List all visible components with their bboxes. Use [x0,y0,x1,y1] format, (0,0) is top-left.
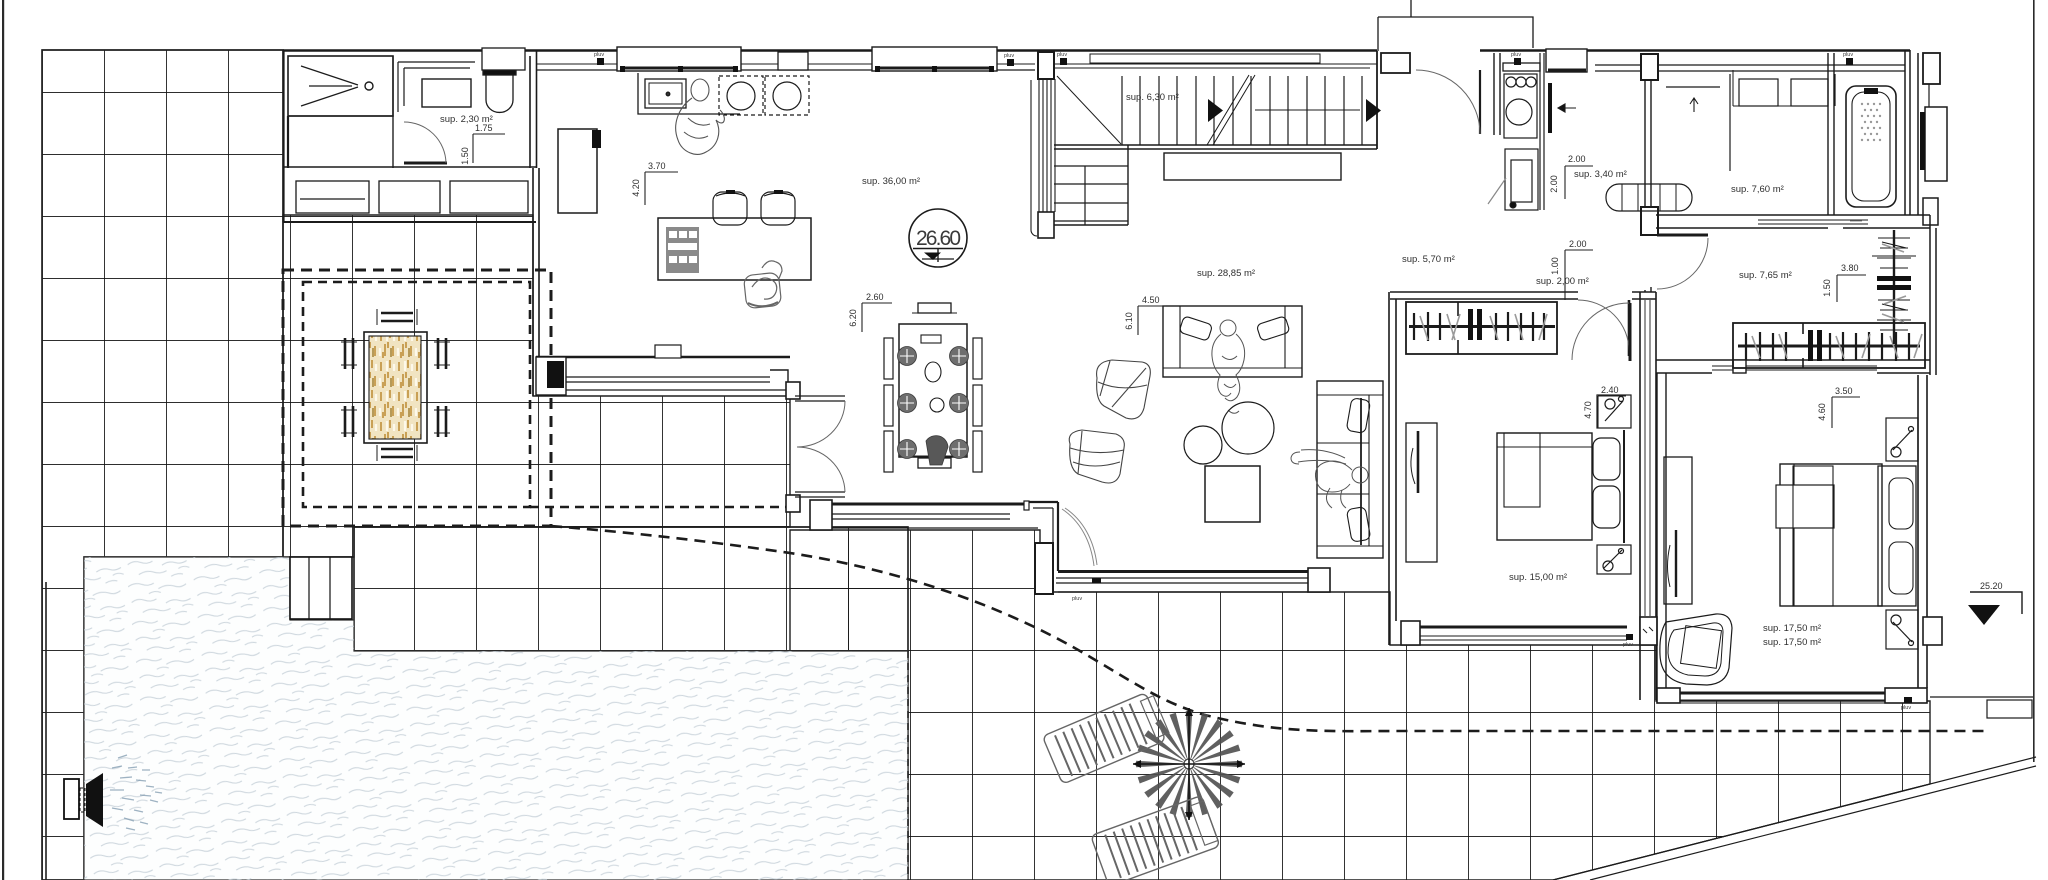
svg-text:sup. 2,00 m²: sup. 2,00 m² [1536,276,1589,287]
svg-text:26.60: 26.60 [916,227,961,250]
svg-text:pluv: pluv [1072,596,1082,602]
svg-text:pluv: pluv [1901,705,1911,711]
svg-text:2.60: 2.60 [866,292,884,302]
svg-text:sup. 7,65 m²: sup. 7,65 m² [1739,270,1792,281]
svg-text:sup. 3,40 m²: sup. 3,40 m² [1574,169,1627,180]
svg-text:sup. 28,85 m²: sup. 28,85 m² [1197,268,1255,279]
svg-text:3.70: 3.70 [648,161,666,171]
svg-text:pluv: pluv [1511,52,1521,58]
svg-text:2.00: 2.00 [1549,175,1559,193]
svg-text:4.60: 4.60 [1817,403,1827,421]
svg-text:2.00: 2.00 [1568,154,1586,164]
svg-text:pluv: pluv [1004,53,1014,59]
svg-text:sup. 5,70 m²: sup. 5,70 m² [1402,254,1455,265]
svg-text:4.70: 4.70 [1583,401,1593,419]
svg-text:sup. 15,00 m²: sup. 15,00 m² [1509,572,1567,583]
svg-text:2.40: 2.40 [1601,385,1619,395]
svg-text:6.20: 6.20 [848,309,858,327]
svg-text:sup. 36,00 m²: sup. 36,00 m² [862,176,920,187]
svg-text:1.50: 1.50 [1822,279,1832,297]
svg-text:3.80: 3.80 [1841,263,1859,273]
svg-text:pluv: pluv [1057,52,1067,58]
svg-text:sup. 17,50 m²: sup. 17,50 m² [1763,623,1821,634]
svg-text:4.20: 4.20 [631,179,641,197]
svg-text:2.00: 2.00 [1569,239,1587,249]
svg-text:1.00: 1.00 [1550,257,1560,275]
svg-text:pluv: pluv [1843,52,1853,58]
svg-text:pluv: pluv [1623,642,1633,648]
svg-text:pluv: pluv [594,52,604,58]
svg-text:sup. 17,50 m²: sup. 17,50 m² [1763,637,1821,648]
svg-text:sup. 7,60 m²: sup. 7,60 m² [1731,184,1784,195]
svg-text:sup. 6,30 m²: sup. 6,30 m² [1126,92,1179,103]
svg-text:1.75: 1.75 [475,123,493,133]
svg-text:4.50: 4.50 [1142,295,1160,305]
svg-text:1.50: 1.50 [460,147,470,165]
svg-text:6.10: 6.10 [1124,312,1134,330]
svg-text:25.20: 25.20 [1980,581,2003,591]
svg-text:3.50: 3.50 [1835,386,1853,396]
